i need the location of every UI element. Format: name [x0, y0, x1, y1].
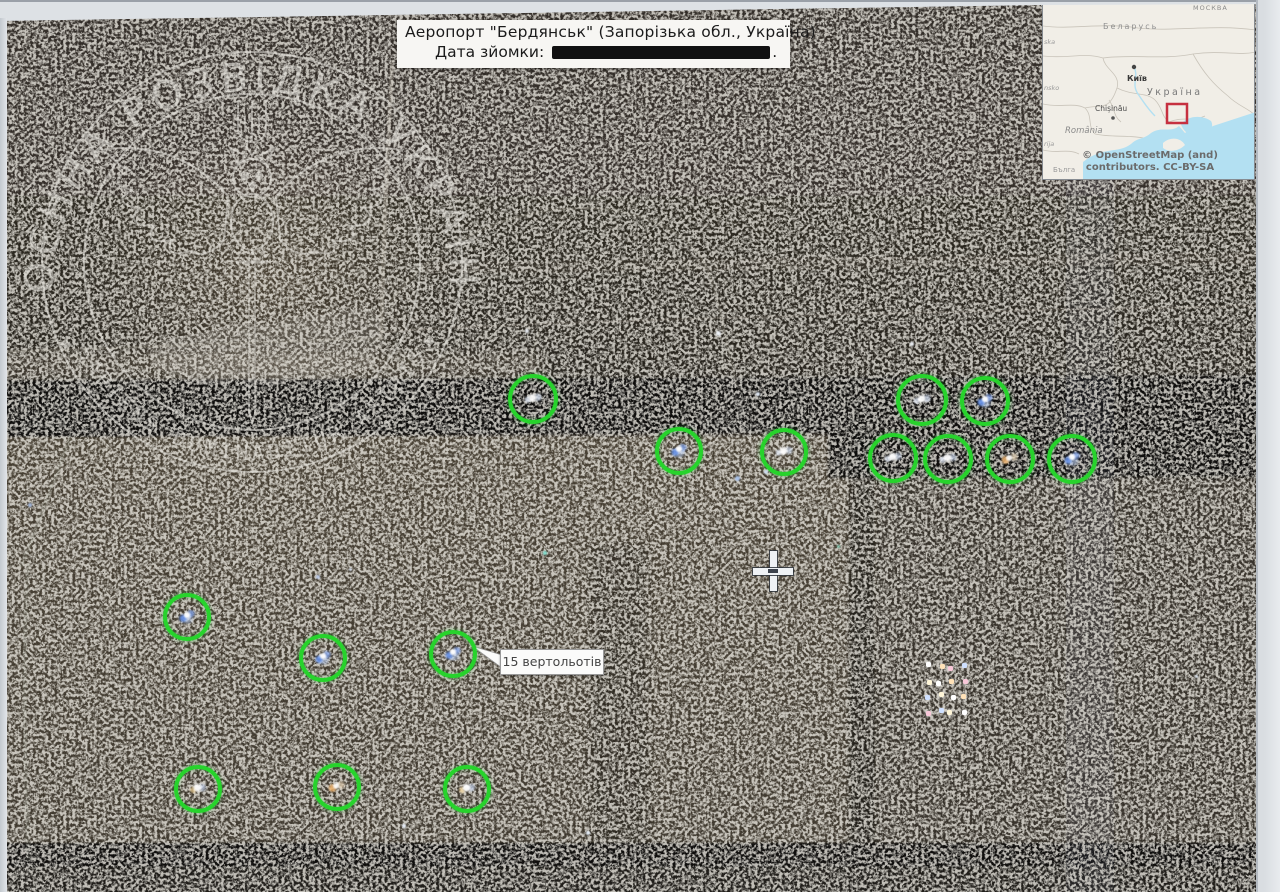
- map-label-ukraine: Україна: [1147, 87, 1203, 98]
- map-attribution-line1: © OpenStreetMap (and): [1082, 150, 1218, 161]
- map-label-kyiv: Київ: [1127, 74, 1147, 83]
- bright-speck: [525, 329, 529, 333]
- map-label-serbia-partial: rija: [1044, 140, 1054, 148]
- vehicle-cluster-dot: [962, 710, 967, 715]
- map-label-romania: România: [1065, 126, 1103, 136]
- vehicle-cluster-dot: [948, 666, 953, 671]
- vehicle-cluster-dot: [940, 664, 945, 669]
- vehicle-cluster-dot: [951, 695, 956, 700]
- airport-title: Аеропорт "Бердянськ" (Запорізька обл., У…: [405, 23, 782, 41]
- bright-speck: [735, 476, 740, 481]
- bright-speck: [402, 824, 406, 828]
- bright-speck: [716, 331, 721, 336]
- photo-border-right: [1256, 0, 1280, 892]
- helicopter: [326, 779, 348, 794]
- kyiv-dot: [1132, 65, 1136, 69]
- helicopter: [974, 393, 996, 408]
- vehicle-cluster-dot: [949, 679, 954, 684]
- bright-speck: [910, 342, 914, 346]
- helicopter: [456, 781, 478, 796]
- inset-locator-map: МОСКВА Беларусь Київ Україна Chișinău Ro…: [1042, 3, 1255, 180]
- map-attribution-line2: contributors. CC-BY-SA: [1086, 162, 1214, 173]
- bright-speck: [543, 551, 547, 555]
- satellite-image: ВОЄННА РОЗВІДКА УКРАЇНИ SAPIENS DOMINABI…: [0, 0, 1256, 892]
- vehicle-cluster-dot: [961, 694, 966, 699]
- capture-date-label: Дата зйомки:: [435, 43, 544, 61]
- helicopter: [668, 443, 690, 458]
- helicopter: [911, 392, 933, 407]
- map-label-moscow: МОСКВА: [1193, 4, 1228, 12]
- map-label-polska-partial: ska: [1044, 38, 1055, 46]
- helicopter: [312, 650, 334, 665]
- helicopter: [187, 781, 209, 796]
- bright-speck: [764, 470, 768, 474]
- helicopter: [999, 451, 1021, 466]
- helicopter: [882, 450, 904, 465]
- photographed-intel-slide: ВОЄННА РОЗВІДКА УКРАЇНИ SAPIENS DOMINABI…: [0, 0, 1280, 892]
- vehicle-cluster-dot: [962, 663, 967, 668]
- helicopter-count-callout: 15 вертольотів: [500, 649, 604, 675]
- bright-speck: [837, 545, 840, 548]
- helicopter: [522, 391, 544, 406]
- redacted-date-bar: [552, 46, 770, 59]
- bright-speck: [349, 568, 352, 571]
- map-label-bulgaria-partial: Бълга: [1053, 166, 1075, 174]
- helicopter: [176, 609, 198, 624]
- map-label-slovensko-partial: nsko: [1044, 84, 1059, 92]
- vehicle-cluster-dot: [926, 711, 931, 716]
- bright-speck: [586, 831, 590, 835]
- bright-speck: [1195, 675, 1198, 678]
- vehicle-cluster-dot: [963, 679, 968, 684]
- bright-speck: [316, 575, 320, 579]
- vehicle-cluster-dot: [936, 681, 941, 686]
- crosshair-center: [768, 569, 778, 573]
- vehicle-cluster-dot: [925, 695, 930, 700]
- helicopter: [773, 444, 795, 459]
- bright-speck: [28, 503, 32, 507]
- map-label-chisinau: Chișinău: [1095, 104, 1127, 113]
- chisinau-dot: [1111, 116, 1115, 120]
- date-suffix: .: [772, 43, 777, 61]
- vehicle-cluster-dot: [939, 708, 944, 713]
- helicopter: [1061, 451, 1083, 466]
- bright-speck: [756, 392, 760, 396]
- vehicle-cluster-dot: [926, 662, 931, 667]
- helicopter: [937, 451, 959, 466]
- crosshair-cursor[interactable]: [753, 551, 793, 591]
- helicopter: [442, 646, 464, 661]
- title-card: Аеропорт "Бердянськ" (Запорізька обл., У…: [397, 20, 790, 68]
- vehicle-cluster-dot: [947, 710, 952, 715]
- vehicle-cluster-dot: [939, 692, 944, 697]
- map-label-belarus: Беларусь: [1103, 22, 1158, 31]
- vehicle-cluster-dot: [927, 680, 932, 685]
